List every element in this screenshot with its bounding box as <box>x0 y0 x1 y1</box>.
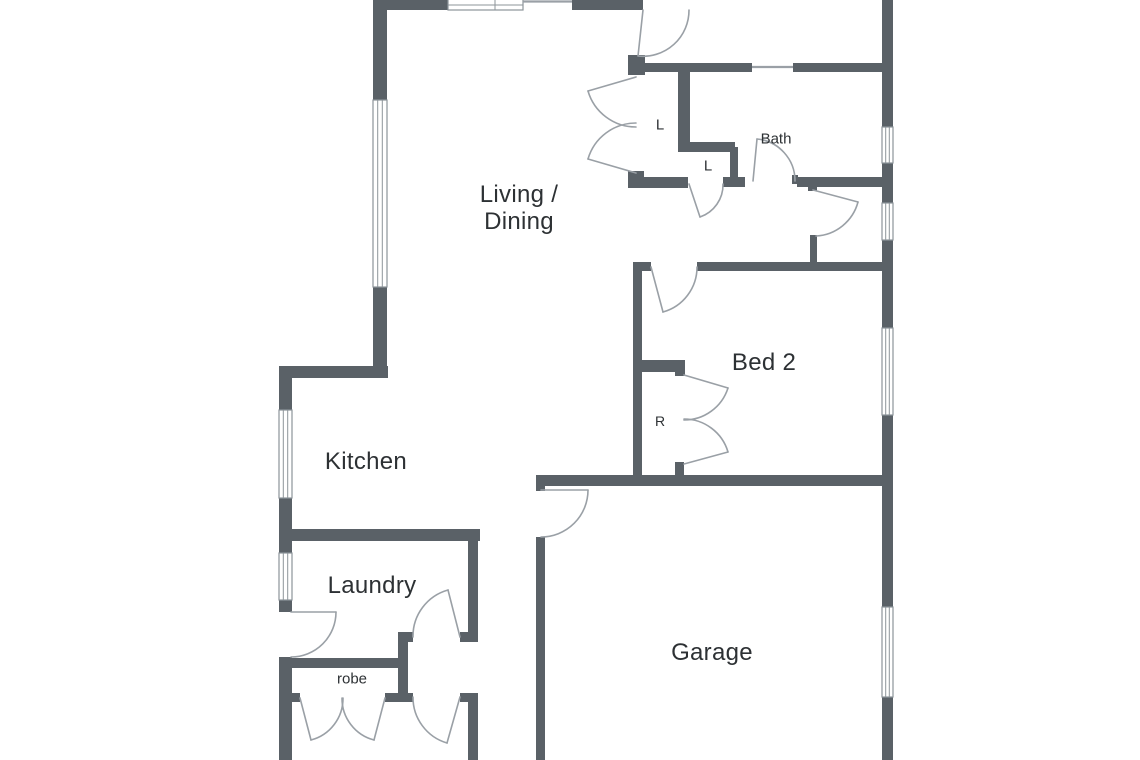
room-label-bed2: Bed 2 <box>732 349 796 377</box>
wall-segment <box>460 632 478 642</box>
room-label-kitchen: Kitchen <box>325 448 407 476</box>
door-swing <box>689 184 723 217</box>
wall-segment <box>460 693 478 702</box>
window <box>448 0 523 10</box>
door-swing <box>638 10 689 56</box>
wall-segment <box>628 63 752 72</box>
door-swing <box>291 612 336 657</box>
floor-plan-page: Living / Dining Kitchen Laundry Garage B… <box>0 0 1140 760</box>
wall-segment <box>536 475 882 486</box>
room-label-robe: robe <box>337 671 367 688</box>
wall-segment <box>288 693 300 702</box>
wall-segment <box>536 537 545 760</box>
wall-segment <box>279 366 388 378</box>
door-swing <box>413 697 460 743</box>
wall-segment <box>810 235 817 265</box>
window <box>279 410 292 498</box>
wall-segment <box>882 240 893 328</box>
double-door-swing <box>300 698 385 740</box>
window <box>882 328 893 415</box>
double-door-swing <box>684 375 728 464</box>
wall-segment <box>882 163 893 203</box>
wall-segment <box>468 700 478 760</box>
window <box>882 127 893 163</box>
walls <box>279 0 893 760</box>
wall-segment <box>697 262 882 271</box>
door-swing <box>413 590 460 637</box>
room-label-laundry: Laundry <box>328 572 417 600</box>
wall-segment <box>373 287 387 377</box>
window <box>882 203 893 240</box>
room-label-living-dining-line1: Living / <box>480 181 558 209</box>
wall-segment <box>279 600 292 612</box>
door-swing <box>541 490 588 537</box>
wall-segment <box>398 632 408 702</box>
wall-segment <box>882 0 893 127</box>
wall-segment <box>279 657 292 760</box>
room-label-living-dining-line2: Dining <box>484 208 554 236</box>
wall-openings <box>523 2 793 68</box>
wall-segment <box>288 658 398 668</box>
closet-label-linen-1: L <box>656 117 664 134</box>
wall-segment <box>723 177 745 187</box>
double-door-swing <box>588 77 636 173</box>
wall-segment <box>279 366 292 410</box>
wall-segment <box>633 262 642 478</box>
wall-segment <box>678 72 690 147</box>
wall-segment <box>628 177 688 188</box>
window <box>882 607 893 697</box>
wall-segment <box>678 142 735 152</box>
wall-segment <box>373 0 387 100</box>
wall-segment <box>572 0 643 10</box>
wall-segment <box>882 697 893 760</box>
wall-segment <box>882 415 893 607</box>
closet-label-linen-2: L <box>704 158 712 175</box>
door-swing <box>813 190 858 236</box>
wall-segment <box>385 693 413 702</box>
floor-plan-drawing <box>0 0 1140 760</box>
room-label-garage: Garage <box>671 639 753 667</box>
closet-label-robe-r: R <box>655 413 665 429</box>
wall-segment <box>279 498 292 553</box>
window <box>373 100 387 287</box>
wall-segment <box>793 63 882 72</box>
door-swing <box>651 267 697 312</box>
wall-segment <box>536 475 545 491</box>
room-label-bath: Bath <box>761 131 792 148</box>
window <box>279 553 292 600</box>
wall-segment <box>675 462 684 476</box>
wall-segment <box>279 529 480 541</box>
wall-segment <box>468 529 478 632</box>
